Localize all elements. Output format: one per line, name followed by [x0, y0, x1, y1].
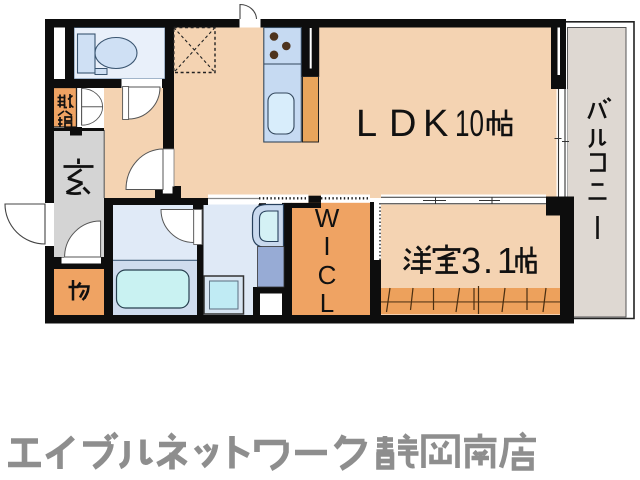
- svg-text:1: 1: [497, 240, 517, 281]
- svg-text:10: 10: [455, 103, 484, 144]
- svg-text:K: K: [423, 103, 448, 145]
- svg-text:L: L: [356, 103, 377, 145]
- svg-text:L: L: [320, 288, 334, 318]
- svg-text:.: .: [483, 240, 493, 281]
- svg-text:D: D: [389, 103, 416, 145]
- svg-text:3: 3: [461, 240, 481, 281]
- svg-text:C: C: [318, 260, 337, 290]
- svg-text:I: I: [323, 231, 330, 261]
- svg-text:W: W: [315, 203, 340, 233]
